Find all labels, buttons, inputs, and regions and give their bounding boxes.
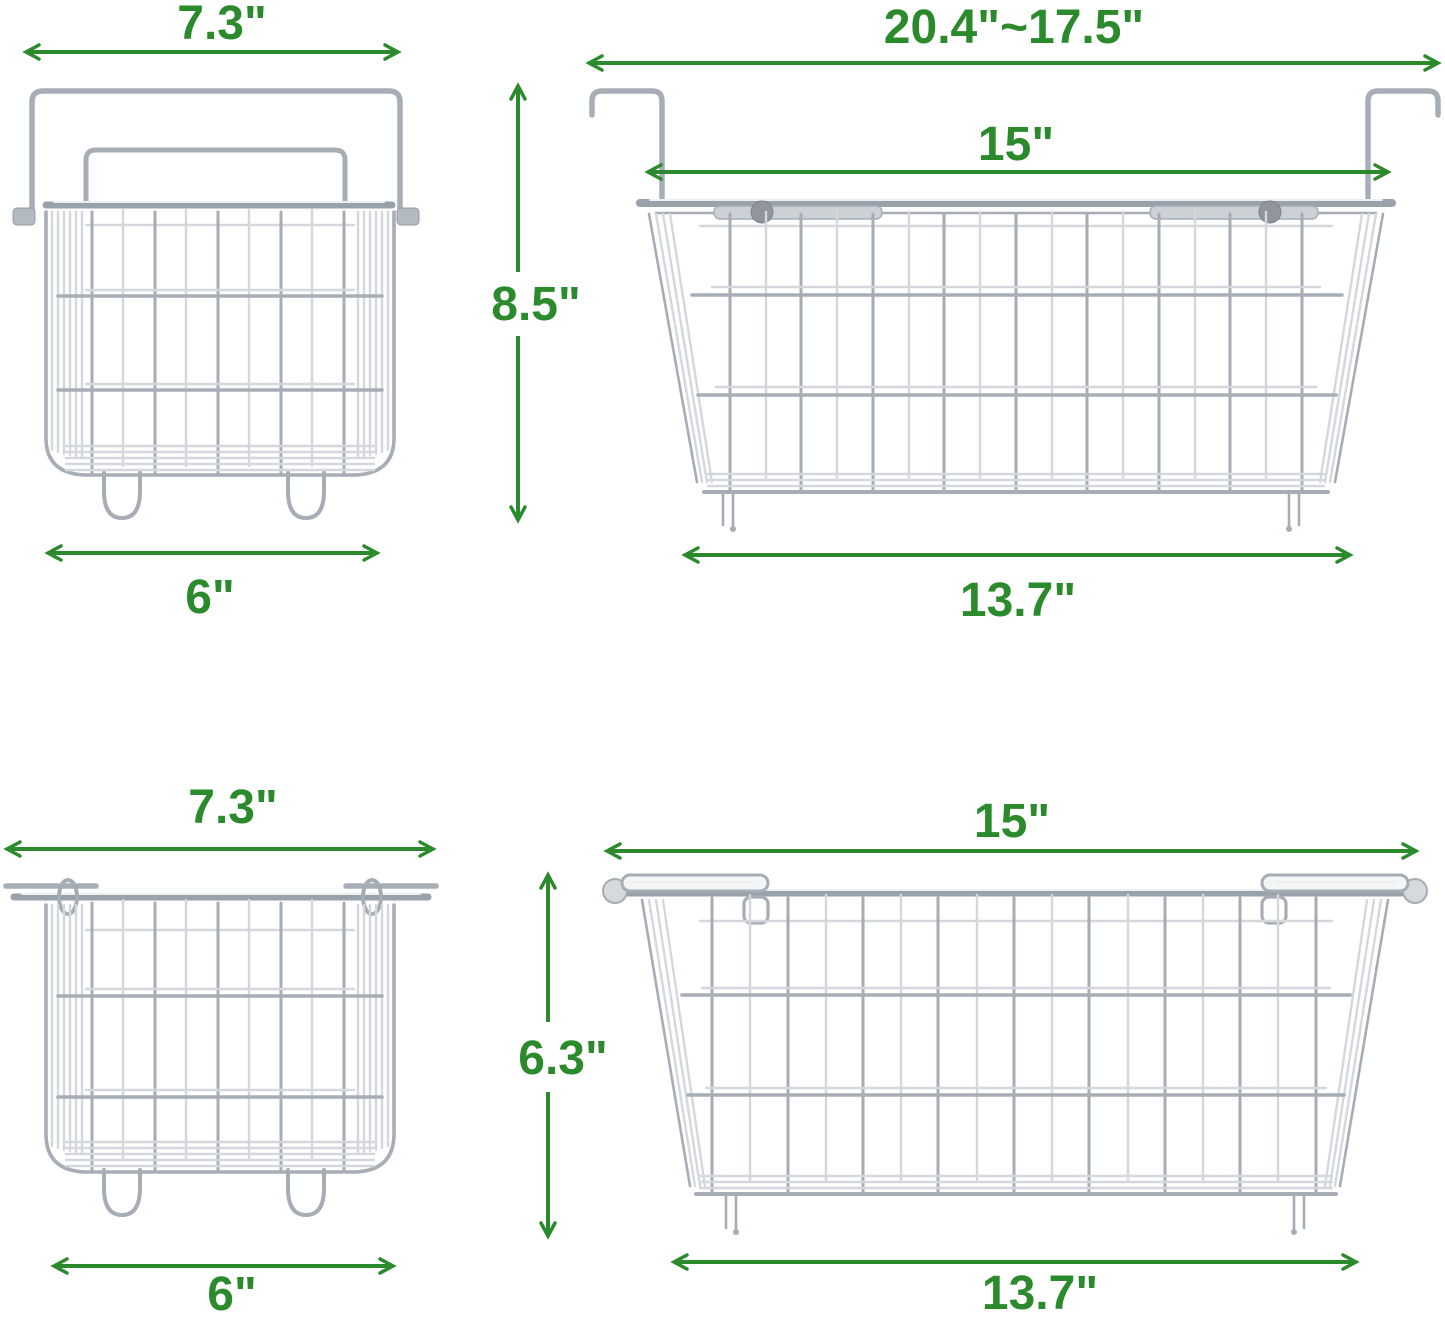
dim-large-top-inner-width: 15"	[648, 118, 1388, 172]
dim-small-bottom-height: 6.3"	[518, 875, 607, 1236]
dimension-label: 7.3"	[177, 0, 266, 50]
dimension-label: 15"	[974, 795, 1050, 848]
large-basket-bottom-illustration	[603, 875, 1427, 1235]
dim-small-top-height: 8.5"	[491, 86, 580, 520]
small-basket-bottom-illustration	[6, 880, 436, 1215]
dim-small-bottom-bottom-width: 6"	[54, 1266, 393, 1320]
dim-large-top-overall-width: 20.4"~17.5"	[589, 1, 1438, 63]
dimension-label: 6"	[185, 571, 234, 624]
dim-large-bottom-top-width: 15"	[607, 795, 1416, 851]
dim-large-bottom-bottom-width: 13.7"	[674, 1262, 1356, 1320]
dimension-label: 20.4"~17.5"	[884, 1, 1144, 54]
dimension-label: 8.5"	[491, 278, 580, 331]
dim-large-top-bottom-width: 13.7"	[685, 555, 1350, 627]
dim-small-top-bottom-width: 6"	[48, 553, 377, 624]
wire-basket-dimensions-diagram: 7.3" 8.5" 6" 20.4"~17.5" 15" 13.7" 7.3"	[0, 0, 1445, 1320]
small-basket-top-illustration	[13, 91, 419, 518]
dimension-label: 15"	[978, 118, 1054, 171]
dim-small-bottom-top-width: 7.3"	[7, 781, 433, 849]
dimension-label: 13.7"	[982, 1267, 1098, 1320]
dimension-label: 6.3"	[518, 1032, 607, 1085]
diagram-canvas: 7.3" 8.5" 6" 20.4"~17.5" 15" 13.7" 7.3"	[0, 0, 1445, 1320]
dimension-label: 6"	[207, 1268, 256, 1320]
dimension-label: 7.3"	[188, 781, 277, 834]
dimension-label: 13.7"	[960, 574, 1076, 627]
dim-small-top-top-width: 7.3"	[26, 0, 398, 52]
dimension-annotations: 7.3" 8.5" 6" 20.4"~17.5" 15" 13.7" 7.3"	[7, 0, 1438, 1320]
